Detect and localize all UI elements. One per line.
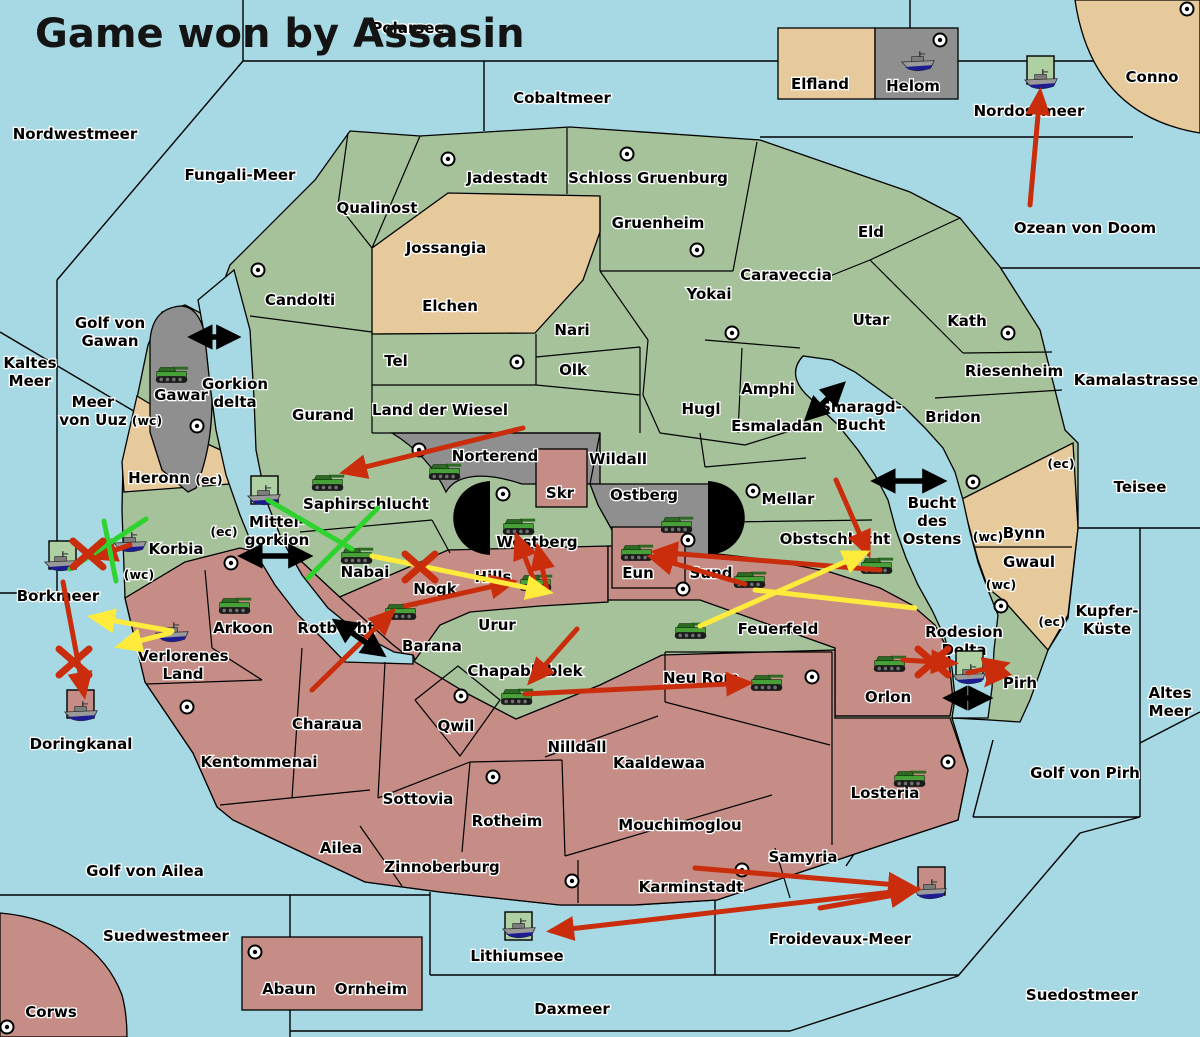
sea-label-golf-von-pirh: Golf von Pirh xyxy=(1030,764,1140,782)
territory-label-nari: Nari xyxy=(554,321,589,339)
sea-label-teisee: Teisee xyxy=(1114,478,1167,496)
sea-label-fungali-meer: Fungali-Meer xyxy=(185,166,296,184)
army-unit-nabai[interactable] xyxy=(341,548,373,564)
sea-label-daxmeer: Daxmeer xyxy=(534,1000,610,1018)
supply-center-icon xyxy=(487,771,500,784)
territory-label-norterend: Norterend xyxy=(452,447,539,465)
fleet-unit-mittel-gorkion[interactable] xyxy=(248,476,280,505)
territory-label-riesenheim: Riesenheim xyxy=(965,362,1063,380)
sea-label-golf-von-ailea: Golf von Ailea xyxy=(86,862,204,880)
fleet-unit-doringkanal[interactable] xyxy=(65,690,97,721)
supply-center-icon xyxy=(691,244,704,257)
territory-label-charaua: Charaua xyxy=(292,715,362,733)
army-unit-neu-rom[interactable] xyxy=(751,675,783,691)
supply-center-icon xyxy=(442,153,455,166)
supply-center-icon xyxy=(511,356,524,369)
fleet-unit-nordostmeer[interactable] xyxy=(1025,56,1057,89)
supply-center-icon xyxy=(455,690,468,703)
fleet-unit-rodesion-delta[interactable] xyxy=(953,651,985,684)
territory-label-jadestadt: Jadestadt xyxy=(466,169,548,187)
territory-label-samyria: Samyria xyxy=(769,848,838,866)
army-unit-norterend[interactable] xyxy=(429,464,461,480)
sea-label-froidevaux-meer: Froidevaux-Meer xyxy=(769,930,912,948)
sea-label-golf-von-gawan: Golf vonGawan xyxy=(75,314,145,350)
territory-label-qwil: Qwil xyxy=(438,717,475,735)
supply-center-icon xyxy=(181,701,194,714)
territory-label-orlon: Orlon xyxy=(865,688,911,706)
coast-tag: (wc) xyxy=(132,413,162,428)
territory-label-heronn: Heronn xyxy=(128,469,190,487)
game-map[interactable]: PolarseeNordwestmeerFungali-MeerCobaltme… xyxy=(0,0,1200,1037)
territory-label-bridon: Bridon xyxy=(925,408,981,426)
sea-label-lithiumsee: Lithiumsee xyxy=(470,947,563,965)
territory-label-hugl: Hugl xyxy=(681,400,720,418)
supply-center-icon xyxy=(677,583,690,596)
territory-label-nabai: Nabai xyxy=(341,563,390,581)
sea-label-suedostmeer: Suedostmeer xyxy=(1026,986,1139,1004)
territory-label-schloss-gruenburg: Schloss Gruenburg xyxy=(568,169,728,187)
supply-center-icon xyxy=(1002,327,1015,340)
sea-label-doringkanal: Doringkanal xyxy=(30,735,133,753)
supply-center-icon xyxy=(566,875,579,888)
territory-label-gruenheim: Gruenheim xyxy=(612,214,705,232)
territory-label-esmaladan: Esmaladan xyxy=(731,417,823,435)
territory-label-obstschlucht: Obstschlucht xyxy=(780,530,891,548)
territory-label-elchen: Elchen xyxy=(422,297,478,315)
territory-label-chapablublek: Chapablublek xyxy=(467,662,583,680)
fleet-unit-lithiumsee[interactable] xyxy=(503,912,535,940)
army-unit-losteria[interactable] xyxy=(894,771,926,787)
territory-label-rotheim: Rotheim xyxy=(472,812,543,830)
supply-center-icon xyxy=(967,476,980,489)
sea-label-rotbucht: Rotbucht xyxy=(297,619,374,637)
supply-center-icon xyxy=(191,420,204,433)
supply-center-icon xyxy=(252,264,265,277)
sea-label-nordwestmeer: Nordwestmeer xyxy=(13,125,138,143)
territory-label-feuerfeld: Feuerfeld xyxy=(738,620,819,638)
supply-center-icon xyxy=(682,534,695,547)
army-unit-orlon[interactable] xyxy=(874,656,906,672)
army-unit-ostberg[interactable] xyxy=(661,517,693,533)
territory-label-corws: Corws xyxy=(25,1003,77,1021)
coast-tag: (wc) xyxy=(124,567,154,582)
territory-label-candolti: Candolti xyxy=(265,291,335,309)
army-unit-gawar[interactable] xyxy=(156,367,188,383)
territory-label-kath: Kath xyxy=(947,312,987,330)
sea-label-ozean-von-doom: Ozean von Doom xyxy=(1014,219,1156,237)
territory-label-kentommenai: Kentommenai xyxy=(200,753,317,771)
supply-center-icon xyxy=(497,488,510,501)
sea-label-cobaltmeer: Cobaltmeer xyxy=(513,89,611,107)
coast-tag: (wc) xyxy=(973,529,1003,544)
fleet-unit-froidevaux-meer[interactable] xyxy=(914,867,946,899)
territory-label-ostberg: Ostberg xyxy=(610,486,678,504)
sea-label-kamalastrasse: Kamalastrasse xyxy=(1074,371,1198,389)
territory-label-skr: Skr xyxy=(546,484,575,502)
coast-tag: (ec) xyxy=(1038,614,1065,629)
territory-label-ailea: Ailea xyxy=(320,839,362,857)
sea-label-suedwestmeer: Suedwestmeer xyxy=(103,927,229,945)
coast-tag: (wc) xyxy=(986,577,1016,592)
territory-label-nilldall: Nilldall xyxy=(547,738,606,756)
coast-tag: (ec) xyxy=(210,524,237,539)
territory-box-abaun-ornheim[interactable] xyxy=(242,937,422,1010)
territory-label-gawar: Gawar xyxy=(154,386,208,404)
territory-label-tel: Tel xyxy=(384,352,408,370)
territory-label-abaun: Abaun xyxy=(262,980,316,998)
army-unit-saphirschlucht[interactable] xyxy=(312,475,344,491)
territory-label-bynn: Bynn xyxy=(1003,524,1046,542)
territory-label-yokai: Yokai xyxy=(685,285,731,303)
sea-label-kaltes-meer: KaltesMeer xyxy=(3,354,56,390)
territory-label-eld: Eld xyxy=(858,223,884,241)
sea-label-kupfer-k-ste: Kupfer-Küste xyxy=(1075,602,1138,638)
territory-label-mouchimoglou: Mouchimoglou xyxy=(618,816,741,834)
sea-label-nordostmeer: Nordostmeer xyxy=(974,102,1085,120)
sea-label-borkmeer: Borkmeer xyxy=(17,587,100,605)
territory-label-olk: Olk xyxy=(559,361,588,379)
coast-tag: (ec) xyxy=(195,472,222,487)
territory-label-ornheim: Ornheim xyxy=(335,980,407,998)
army-unit-westberg[interactable] xyxy=(503,519,535,535)
supply-center-icon xyxy=(934,34,947,47)
territory-label-pirh: Pirh xyxy=(1003,674,1037,692)
supply-center-icon xyxy=(995,600,1008,613)
territory-label-saphirschlucht: Saphirschlucht xyxy=(303,495,429,513)
game-map-screenshot: PolarseeNordwestmeerFungali-MeerCobaltme… xyxy=(0,0,1200,1037)
territory-label-helom: Helom xyxy=(886,77,940,95)
coast-tag: (ec) xyxy=(1047,456,1074,471)
territory-label-barana: Barana xyxy=(402,637,462,655)
territory-label-land-der-wiesel: Land der Wiesel xyxy=(372,401,508,419)
supply-center-icon xyxy=(726,327,739,340)
supply-center-icon xyxy=(249,946,262,959)
territory-label-karminstadt: Karminstadt xyxy=(639,878,744,896)
territory-label-mellar: Mellar xyxy=(762,490,816,508)
territory-label-amphi: Amphi xyxy=(741,380,795,398)
territory-label-kaaldewaa: Kaaldewaa xyxy=(613,754,705,772)
supply-center-icon xyxy=(806,671,819,684)
supply-center-icon xyxy=(747,485,760,498)
supply-center-icon xyxy=(1,1021,14,1034)
supply-center-icon xyxy=(1181,3,1194,16)
territory-label-urur: Urur xyxy=(478,616,516,634)
supply-center-icon xyxy=(225,557,238,570)
territory-label-arkoon: Arkoon xyxy=(213,619,273,637)
army-unit-arkoon[interactable] xyxy=(219,598,251,614)
territory-label-jossangia: Jossangia xyxy=(405,239,487,257)
territory-label-korbia: Korbia xyxy=(148,540,203,558)
supply-center-icon xyxy=(621,148,634,161)
territory-label-gurand: Gurand xyxy=(292,406,354,424)
map-geography[interactable] xyxy=(0,0,1200,1037)
sea-label-altes-meer: AltesMeer xyxy=(1148,684,1191,720)
territory-label-conno: Conno xyxy=(1126,68,1179,86)
territory-label-wildall: Wildall xyxy=(589,450,647,468)
map-title: Game won by Assasin xyxy=(35,11,525,57)
territory-label-elfland: Elfland xyxy=(791,75,849,93)
territory-label-caraveccia: Caraveccia xyxy=(740,266,832,284)
territory-label-qualinost: Qualinost xyxy=(337,199,418,217)
army-unit-eun[interactable] xyxy=(621,545,653,561)
army-unit-chapablublek[interactable] xyxy=(501,689,533,705)
territory-label-zinnoberburg: Zinnoberburg xyxy=(384,858,500,876)
territory-label-gwaul: Gwaul xyxy=(1003,553,1055,571)
territory-label-eun: Eun xyxy=(622,564,654,582)
supply-center-icon xyxy=(942,756,955,769)
territory-label-sottovia: Sottovia xyxy=(383,790,454,808)
territory-label-utar: Utar xyxy=(853,311,890,329)
